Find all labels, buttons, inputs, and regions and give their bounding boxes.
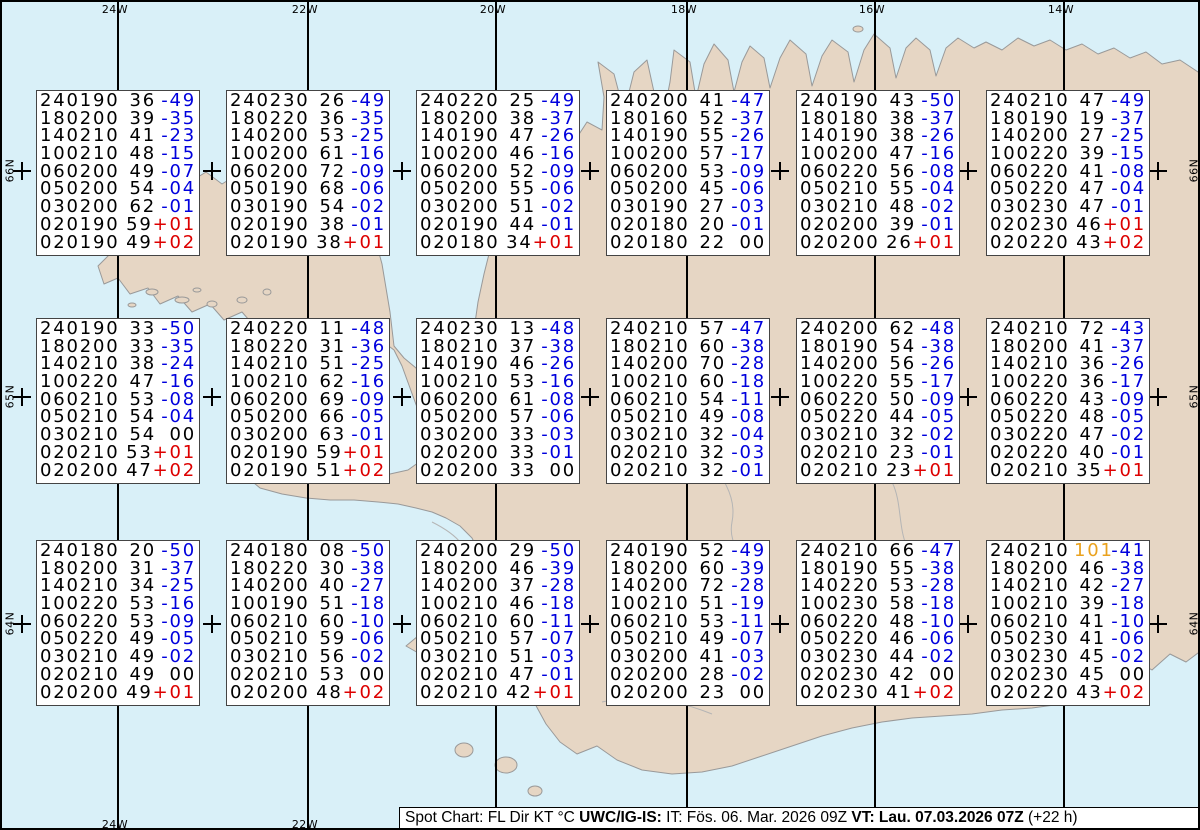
parallel-label-right: 65N xyxy=(1188,384,1200,410)
wind-speed-kt: 41 xyxy=(882,684,913,702)
spot-row: 0202105300 xyxy=(230,666,386,684)
parallel-label-right: 66N xyxy=(1188,158,1200,184)
station-box: 24019036-4918020039-3514021041-231002104… xyxy=(36,90,200,256)
flight-level-direction: 020180 xyxy=(610,216,694,234)
temperature-c: 00 xyxy=(726,234,766,252)
temperature-c: +01 xyxy=(343,234,386,252)
flight-level-direction: 020220 xyxy=(990,234,1072,252)
island xyxy=(455,743,473,757)
station-box: 24022025-4918020038-3714019047-261002004… xyxy=(416,90,580,256)
graticule-tick xyxy=(211,388,213,406)
wind-speed-kt: 20 xyxy=(694,216,726,234)
spot-row: 02021023-01 xyxy=(800,444,956,462)
station-box: 24020029-5018020046-3914020037-281002104… xyxy=(416,540,580,706)
temperature-c: +02 xyxy=(913,684,956,702)
spot-row: 02021047-01 xyxy=(420,666,576,684)
graticule-tick xyxy=(779,615,781,633)
chart-info-segment: Spot Chart: FL Dir KT °C xyxy=(405,809,579,826)
flight-level-direction: 020200 xyxy=(420,444,504,462)
spot-row: 02023046+01 xyxy=(990,216,1146,234)
graticule-tick xyxy=(967,162,969,180)
spot-row: 02020028-02 xyxy=(610,666,766,684)
graticule-tick xyxy=(21,388,23,406)
flight-level-direction: 020230 xyxy=(990,216,1072,234)
island xyxy=(853,26,863,32)
temperature-c: -01 xyxy=(1106,444,1146,462)
wind-speed-kt: 26 xyxy=(882,234,913,252)
flight-level-direction: 020210 xyxy=(610,462,694,480)
island xyxy=(495,757,517,773)
wind-speed-kt: 33 xyxy=(504,462,536,480)
station-box: 24020041-4718016052-3714019055-261002005… xyxy=(606,90,770,256)
parallel-label-left: 64N xyxy=(4,611,17,637)
temperature-c: -02 xyxy=(726,666,766,684)
parallel-label-left: 66N xyxy=(4,158,17,184)
temperature-c: +02 xyxy=(153,234,196,252)
graticule-tick xyxy=(211,162,213,180)
island xyxy=(146,289,158,295)
wind-speed-kt: 44 xyxy=(504,216,536,234)
temperature-c: +02 xyxy=(1103,684,1146,702)
flight-level-direction: 020230 xyxy=(800,666,884,684)
wind-speed-kt: 42 xyxy=(502,684,533,702)
temperature-c: +02 xyxy=(153,462,196,480)
temperature-c: +01 xyxy=(153,444,196,462)
flight-level-direction: 020220 xyxy=(990,444,1074,462)
temperature-c: -01 xyxy=(536,444,576,462)
flight-level-direction: 020210 xyxy=(40,444,122,462)
spot-row: 02021042+01 xyxy=(420,684,576,702)
wind-speed-kt: 23 xyxy=(694,684,726,702)
spot-row: 02019044-01 xyxy=(420,216,576,234)
wind-speed-kt: 43 xyxy=(1072,684,1103,702)
chart-info-segment: VT: Lau. 07.03.2026 07Z xyxy=(851,809,1023,826)
spot-row: 02018020-01 xyxy=(610,216,766,234)
temperature-c: +02 xyxy=(343,684,386,702)
station-box: 24021066-4718019055-3814022053-281002305… xyxy=(796,540,960,706)
spot-row: 02022043+02 xyxy=(990,684,1146,702)
island xyxy=(528,786,542,796)
wind-speed-kt: 43 xyxy=(1072,234,1103,252)
chart-info-segment: UWC/IG-IS: xyxy=(579,809,662,826)
flight-level-direction: 020200 xyxy=(420,462,504,480)
temperature-c: 00 xyxy=(156,666,196,684)
flight-level-direction: 020190 xyxy=(230,234,312,252)
temperature-c: -01 xyxy=(916,444,956,462)
temperature-c: -01 xyxy=(346,216,386,234)
temperature-c: 00 xyxy=(726,684,766,702)
temperature-c: +02 xyxy=(343,462,386,480)
wind-speed-kt: 47 xyxy=(122,462,153,480)
temperature-c: 00 xyxy=(536,462,576,480)
graticule-tick xyxy=(589,162,591,180)
spot-row: 02021035+01 xyxy=(990,462,1146,480)
wind-speed-kt: 53 xyxy=(314,666,346,684)
spot-row: 02019049+02 xyxy=(40,234,196,252)
spot-row: 02021032-03 xyxy=(610,444,766,462)
graticule-tick xyxy=(589,388,591,406)
meridian-label-top: 24W xyxy=(102,3,128,16)
flight-level-direction: 020230 xyxy=(800,684,882,702)
spot-row: 02021023+01 xyxy=(800,462,956,480)
spot-row: 0202304500 xyxy=(990,666,1146,684)
station-box: 24020062-4818019054-3814020056-261002205… xyxy=(796,318,960,484)
spot-row: 0202003300 xyxy=(420,462,576,480)
spot-row: 02019059+01 xyxy=(40,216,196,234)
flight-level-direction: 020190 xyxy=(230,216,314,234)
island xyxy=(193,288,201,292)
temperature-c: -03 xyxy=(726,444,766,462)
flight-level-direction: 020200 xyxy=(230,684,312,702)
temperature-c: +01 xyxy=(153,216,196,234)
spot-row: 02023041+02 xyxy=(800,684,956,702)
temperature-c: +01 xyxy=(343,444,386,462)
flight-level-direction: 020190 xyxy=(40,216,122,234)
flight-level-direction: 020190 xyxy=(230,444,312,462)
spot-row: 02021032-01 xyxy=(610,462,766,480)
wind-speed-kt: 53 xyxy=(122,444,153,462)
wind-speed-kt: 59 xyxy=(312,444,343,462)
spot-row: 02020049+01 xyxy=(40,684,196,702)
graticule-tick xyxy=(21,162,23,180)
flight-level-direction: 020210 xyxy=(610,444,694,462)
spot-row: 0202104900 xyxy=(40,666,196,684)
spot-row: 02022040-01 xyxy=(990,444,1146,462)
flight-level-direction: 020230 xyxy=(990,666,1074,684)
temperature-c: +01 xyxy=(533,234,576,252)
spot-row: 02022043+02 xyxy=(990,234,1146,252)
temperature-c: +02 xyxy=(1103,234,1146,252)
station-box: 24018008-5018022030-3814020040-271001905… xyxy=(226,540,390,706)
temperature-c: +01 xyxy=(153,684,196,702)
graticule-tick xyxy=(589,615,591,633)
island xyxy=(237,297,247,303)
spot-row: 02018034+01 xyxy=(420,234,576,252)
wind-speed-kt: 23 xyxy=(884,444,916,462)
spot-row: 02019038+01 xyxy=(230,234,386,252)
wind-speed-kt: 33 xyxy=(504,444,536,462)
wind-speed-kt: 22 xyxy=(694,234,726,252)
meridian-label-top: 16W xyxy=(859,3,885,16)
temperature-c: 00 xyxy=(916,666,956,684)
temperature-c: +01 xyxy=(913,462,956,480)
wind-speed-kt: 40 xyxy=(1074,444,1106,462)
parallel-label-left: 65N xyxy=(4,384,17,410)
wind-speed-kt: 42 xyxy=(884,666,916,684)
flight-level-direction: 020210 xyxy=(800,462,882,480)
wind-speed-kt: 49 xyxy=(122,234,153,252)
flight-level-direction: 020190 xyxy=(420,216,504,234)
chart-info-segment: IT: Fös. 06. Mar. 2026 09Z xyxy=(662,809,852,826)
wind-speed-kt: 48 xyxy=(312,684,343,702)
flight-level-direction: 020200 xyxy=(40,462,122,480)
wind-speed-kt: 45 xyxy=(1074,666,1106,684)
spot-row: 02020033-01 xyxy=(420,444,576,462)
station-box: 24022011-4818022031-3614021051-251002106… xyxy=(226,318,390,484)
wind-speed-kt: 32 xyxy=(694,462,726,480)
parallel-label-right: 64N xyxy=(1188,611,1200,637)
flight-level-direction: 020200 xyxy=(800,234,882,252)
wind-speed-kt: 49 xyxy=(122,684,153,702)
station-box: 24021057-4718021060-3814020070-281002106… xyxy=(606,318,770,484)
spot-row: 02020047+02 xyxy=(40,462,196,480)
wind-speed-kt: 39 xyxy=(884,216,916,234)
spot-row: 02020048+02 xyxy=(230,684,386,702)
spot-row: 02019051+02 xyxy=(230,462,386,480)
spot-row: 02020039-01 xyxy=(800,216,956,234)
temperature-c: +01 xyxy=(1103,216,1146,234)
meridian-label-top: 18W xyxy=(671,3,697,16)
spot-row: 02020026+01 xyxy=(800,234,956,252)
wind-speed-kt: 34 xyxy=(502,234,533,252)
station-box: 24019033-5018020033-3514021038-241002204… xyxy=(36,318,200,484)
station-box: 24019052-4918020060-3914020072-281002105… xyxy=(606,540,770,706)
spot-row: 02021053+01 xyxy=(40,444,196,462)
wind-speed-kt: 35 xyxy=(1072,462,1103,480)
station-box: 24019043-5018018038-3714019038-261002004… xyxy=(796,90,960,256)
meridian-label-top: 20W xyxy=(480,3,506,16)
graticule-tick xyxy=(779,162,781,180)
station-box: 24021047-4918019019-3714020027-251002203… xyxy=(986,90,1150,256)
wind-speed-kt: 23 xyxy=(882,462,913,480)
graticule-tick xyxy=(779,388,781,406)
temperature-c: 00 xyxy=(346,666,386,684)
flight-level-direction: 020200 xyxy=(610,666,694,684)
chart-info-bar: Spot Chart: FL Dir KT °C UWC/IG-IS: IT: … xyxy=(399,807,1200,830)
graticule-tick xyxy=(1157,615,1159,633)
flight-level-direction: 020210 xyxy=(420,684,502,702)
flight-level-direction: 020180 xyxy=(610,234,694,252)
temperature-c: -01 xyxy=(536,666,576,684)
graticule-tick xyxy=(401,388,403,406)
flight-level-direction: 020200 xyxy=(40,684,122,702)
wind-speed-kt: 46 xyxy=(1072,216,1103,234)
graticule-tick xyxy=(401,615,403,633)
temperature-c: -01 xyxy=(916,216,956,234)
spot-row: 0202304200 xyxy=(800,666,956,684)
wind-speed-kt: 38 xyxy=(314,216,346,234)
station-box: 24021072-4318020041-3714021036-261002203… xyxy=(986,318,1150,484)
flight-level-direction: 020190 xyxy=(40,234,122,252)
station-box: 24018020-5018020031-3714021034-251002205… xyxy=(36,540,200,706)
flight-level-direction: 020190 xyxy=(230,462,312,480)
graticule-tick xyxy=(211,615,213,633)
island xyxy=(128,303,136,307)
flight-level-direction: 020200 xyxy=(610,684,694,702)
spot-row: 02019059+01 xyxy=(230,444,386,462)
island xyxy=(175,297,189,303)
spot-row: 02019038-01 xyxy=(230,216,386,234)
meridian-label-top: 14W xyxy=(1048,3,1074,16)
temperature-c: -01 xyxy=(726,216,766,234)
graticule-tick xyxy=(21,615,23,633)
graticule-tick xyxy=(967,388,969,406)
flight-level-direction: 020210 xyxy=(990,462,1072,480)
meridian-label-bottom: 24W xyxy=(102,818,128,830)
graticule-tick xyxy=(1157,162,1159,180)
wind-speed-kt: 49 xyxy=(124,666,156,684)
station-box: 240210101-4118020046-3814021042-27100210… xyxy=(986,540,1150,706)
flight-level-direction: 020210 xyxy=(420,666,504,684)
wind-speed-kt: 51 xyxy=(312,462,343,480)
graticule-tick xyxy=(1157,388,1159,406)
temperature-c: +01 xyxy=(533,684,576,702)
flight-level-direction: 020210 xyxy=(230,666,314,684)
chart-info-segment: (+22 h) xyxy=(1024,809,1078,826)
temperature-c: +01 xyxy=(913,234,956,252)
temperature-c: -01 xyxy=(726,462,766,480)
wind-speed-kt: 38 xyxy=(312,234,343,252)
meridian-label-top: 22W xyxy=(292,3,318,16)
station-box: 24023013-4818021037-3814019046-261002105… xyxy=(416,318,580,484)
wind-speed-kt: 59 xyxy=(122,216,153,234)
graticule-tick xyxy=(967,615,969,633)
spot-row: 0202002300 xyxy=(610,684,766,702)
temperature-c: -01 xyxy=(536,216,576,234)
island xyxy=(263,289,271,295)
flight-level-direction: 020220 xyxy=(990,684,1072,702)
wind-speed-kt: 47 xyxy=(504,666,536,684)
graticule-tick xyxy=(401,162,403,180)
wind-speed-kt: 28 xyxy=(694,666,726,684)
spot-row: 0201802200 xyxy=(610,234,766,252)
wind-speed-kt: 32 xyxy=(694,444,726,462)
spot-chart-map: 24W24W22W22W20W20W18W18W16W16W14W14W66N6… xyxy=(0,0,1200,830)
station-box: 24023026-4918022036-3514020053-251002006… xyxy=(226,90,390,256)
flight-level-direction: 020210 xyxy=(40,666,124,684)
island xyxy=(207,301,217,307)
flight-level-direction: 020180 xyxy=(420,234,502,252)
temperature-c: 00 xyxy=(1106,666,1146,684)
flight-level-direction: 020200 xyxy=(800,216,884,234)
meridian-label-bottom: 22W xyxy=(292,818,318,830)
temperature-c: +01 xyxy=(1103,462,1146,480)
flight-level-direction: 020210 xyxy=(800,444,884,462)
